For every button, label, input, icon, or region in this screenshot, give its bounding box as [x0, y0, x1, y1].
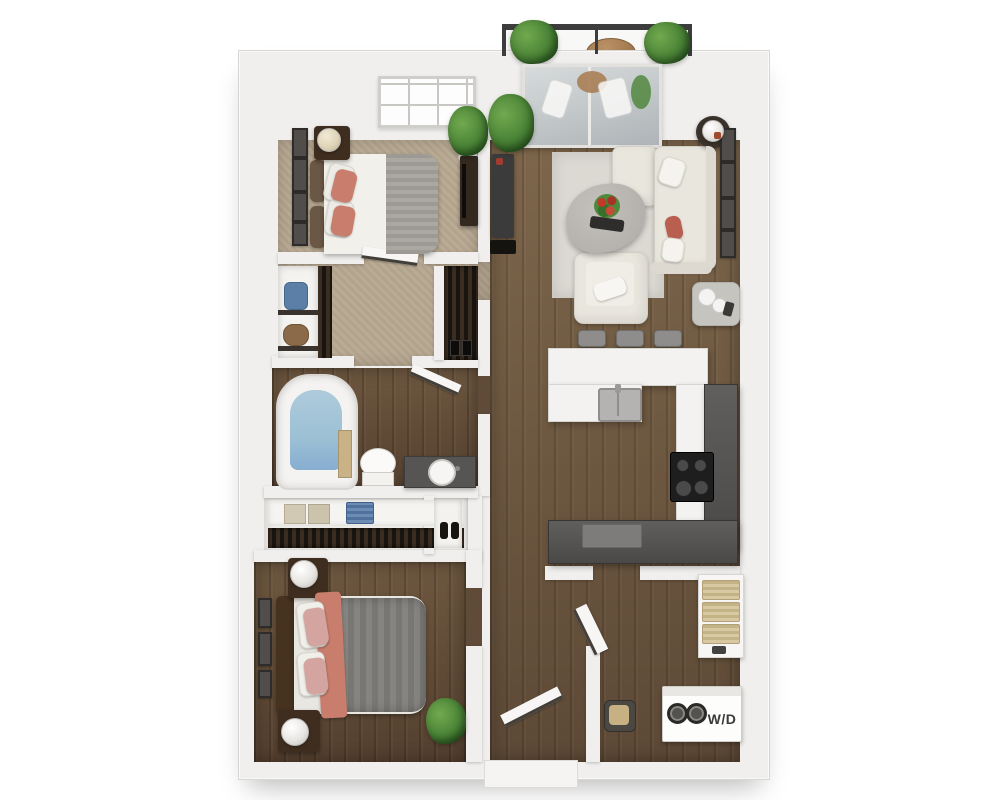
sofa-backrest: [706, 146, 716, 268]
bed1-wall-frame-1: [292, 128, 308, 158]
shoe-pair-2: [451, 522, 459, 539]
front-door-threshold: [484, 760, 578, 788]
sliding-glass-door: [522, 64, 662, 148]
bedroom1-tv: [462, 164, 466, 218]
kitchen-counter-bottom: [548, 520, 738, 564]
washer-dryer-top-band: [663, 687, 741, 696]
sofa-pillow-white-2: [660, 237, 685, 264]
shower-screen: [338, 430, 352, 478]
media-console-decor-red: [496, 158, 503, 165]
wall-hall-entry: [586, 646, 600, 762]
living-wall-frame-4: [720, 230, 736, 258]
dryer-door-icon: [686, 703, 707, 724]
wall-dressing-hall: [478, 300, 490, 376]
doorway-dressing-hall: [478, 262, 490, 300]
wall-bedroom2-right-lower: [466, 646, 482, 762]
living-wall-frame-3: [720, 198, 736, 230]
washer-door-icon: [667, 703, 688, 724]
bed1-lamp: [317, 128, 341, 152]
bar-stool-2: [616, 330, 644, 347]
bar-stool-1: [578, 330, 606, 347]
closet-shoe-left: [450, 340, 460, 356]
closet-right-wall: [434, 266, 444, 360]
side-table-decor-red: [714, 132, 721, 139]
closet-shoe-right: [462, 340, 472, 356]
wall-bath-hall: [478, 414, 490, 496]
toilet-tank: [362, 472, 394, 486]
shoe-pair-1: [440, 522, 448, 539]
closet2-box-2: [308, 504, 330, 524]
bed1-gray-throw: [386, 154, 438, 254]
wall-bedroom1-living: [478, 140, 490, 262]
washer-dryer-label: W/D: [705, 696, 739, 741]
media-console: [492, 154, 514, 238]
shelf-basket-2: [702, 602, 740, 622]
railing-post-middle: [595, 24, 598, 54]
shelf-edge-upper: [278, 310, 318, 315]
kitchen-counter-top: [548, 348, 708, 386]
bed2-wall-frame-3: [258, 670, 272, 698]
kitchen-range: [670, 452, 714, 502]
railing-post-left: [502, 24, 506, 56]
closet-left-hanging-clothes: [318, 266, 332, 358]
wall-bedroom1-dressing-b: [424, 252, 478, 264]
bedroom2-plant-icon: [426, 698, 466, 744]
living-wall-frame-2: [720, 162, 736, 198]
vanity-faucet: [455, 466, 460, 471]
bed1-wall-frame-3: [292, 192, 308, 222]
bed2-pillow-pink-2: [303, 657, 329, 695]
bathtub-water: [290, 390, 342, 470]
doorway-bath-hall: [478, 376, 490, 414]
bed2-lamp-top: [290, 560, 318, 588]
kitchen-bottom-inset: [582, 524, 642, 548]
balcony-chair-reflection-right: [597, 76, 633, 120]
wall-bedroom2-right-upper: [466, 550, 482, 588]
sofa-armrest: [650, 262, 712, 274]
balcony-plant-right-icon: [644, 22, 690, 64]
wall-closet2-bedroom2: [254, 550, 468, 562]
doorway-bedroom2: [466, 588, 482, 646]
balcony-chair-reflection-left: [540, 78, 574, 120]
bed2-lamp-bottom: [281, 718, 309, 746]
bed1-wall-frame-2: [292, 158, 308, 192]
living-room-plant-icon: [488, 94, 534, 152]
shelf-item-dark: [712, 646, 726, 654]
shelf-basket-3: [702, 624, 740, 644]
bag-blue: [284, 282, 308, 310]
bed1-wall-frame-4: [292, 222, 308, 246]
bed2-headboard: [276, 596, 294, 714]
bedroom1-plant-icon: [448, 106, 488, 156]
bed2-wall-frame-2: [258, 632, 272, 666]
bar-stool-3: [654, 330, 682, 347]
kitchen-sink: [598, 388, 642, 422]
vanity-sink: [428, 459, 456, 486]
coffee-table-flowers: [594, 194, 620, 218]
wall-kitchen-entry-left: [545, 566, 593, 580]
shelf-edge-lower: [278, 346, 318, 351]
side-table-lamp: [702, 120, 724, 142]
closet2-basket: [346, 502, 374, 524]
kitchen-sink-divider: [617, 390, 619, 416]
kitchen-faucet: [615, 384, 621, 393]
closet2-box-1: [284, 504, 306, 524]
balcony-plant-left-icon: [510, 20, 558, 64]
entry-basket-inner: [609, 705, 629, 725]
bag-duffel: [283, 324, 309, 346]
washer-dryer-unit: W/D: [662, 686, 742, 742]
bed2-wall-frame-1: [258, 598, 272, 628]
shelf-basket-1: [702, 580, 740, 600]
media-console-speaker: [490, 240, 516, 254]
floor-plan-canvas: W/D: [0, 0, 1000, 800]
balcony-plant-reflection: [631, 75, 651, 109]
